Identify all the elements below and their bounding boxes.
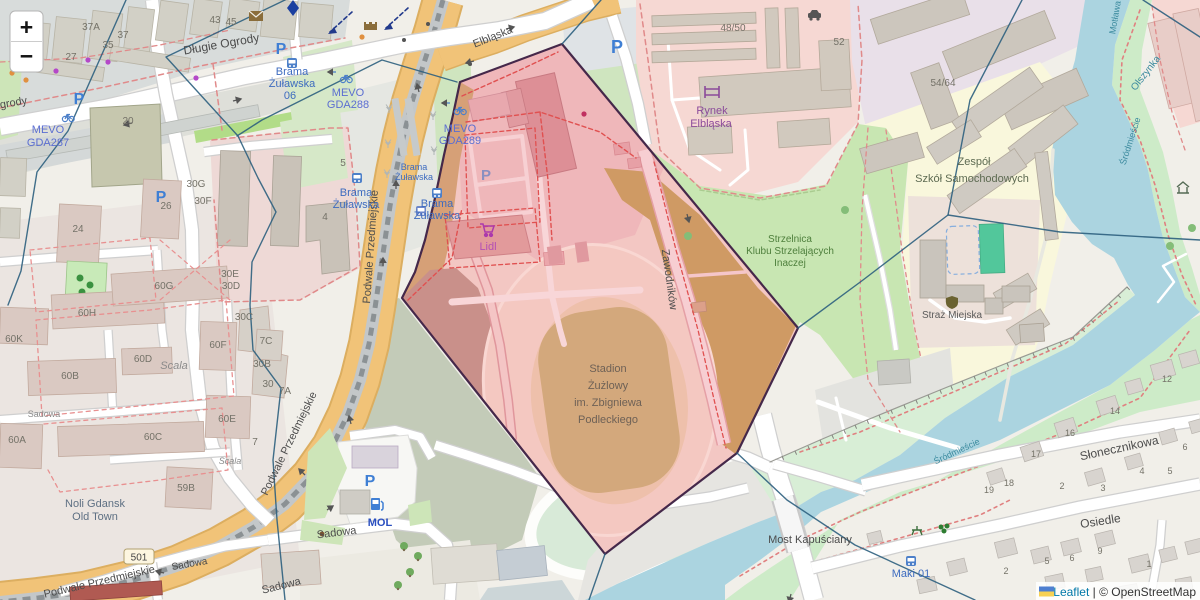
svg-text:26: 26 [160, 201, 172, 212]
svg-text:3: 3 [1100, 483, 1105, 493]
svg-text:Stadion: Stadion [589, 363, 626, 375]
svg-text:5: 5 [1044, 556, 1049, 566]
svg-text:6: 6 [1069, 553, 1074, 563]
svg-text:Klubu Strzelających: Klubu Strzelających [746, 246, 834, 257]
svg-text:4: 4 [322, 212, 328, 223]
svg-text:Old Town: Old Town [72, 511, 118, 523]
svg-text:52: 52 [833, 37, 845, 48]
svg-text:45: 45 [225, 17, 237, 28]
svg-text:30E: 30E [221, 269, 239, 280]
svg-text:60C: 60C [144, 432, 162, 443]
svg-text:59B: 59B [177, 483, 195, 494]
svg-text:30F: 30F [194, 196, 211, 207]
svg-text:+: + [20, 14, 33, 40]
svg-text:Lidl: Lidl [479, 241, 496, 253]
svg-text:Żużlowy: Żużlowy [588, 379, 629, 392]
svg-text:30D: 30D [222, 281, 240, 292]
svg-text:60A: 60A [8, 435, 26, 446]
svg-text:GDA287: GDA287 [27, 137, 69, 149]
svg-text:7C: 7C [260, 336, 273, 347]
svg-text:Podleckiego: Podleckiego [578, 414, 638, 426]
svg-text:37A: 37A [82, 22, 100, 33]
svg-text:54/64: 54/64 [930, 78, 955, 89]
svg-text:P: P [276, 41, 287, 58]
svg-text:30C: 30C [235, 312, 253, 323]
svg-text:1: 1 [1146, 559, 1151, 569]
svg-text:12: 12 [1162, 374, 1172, 384]
svg-text:MEVO: MEVO [332, 87, 365, 99]
svg-text:MEVO: MEVO [444, 123, 477, 135]
svg-text:60G: 60G [155, 281, 174, 292]
svg-text:P: P [611, 37, 623, 57]
svg-text:Brama: Brama [421, 198, 454, 210]
svg-text:P: P [365, 473, 376, 490]
svg-text:Sadowa: Sadowa [28, 409, 61, 419]
svg-text:60H: 60H [78, 308, 96, 319]
svg-text:MEVO: MEVO [32, 124, 65, 136]
svg-text:60B: 60B [61, 371, 79, 382]
svg-text:Strzelnica: Strzelnica [768, 234, 812, 245]
svg-text:Rynek: Rynek [696, 105, 728, 117]
svg-text:Scala: Scala [219, 456, 242, 466]
svg-text:37: 37 [117, 30, 129, 41]
svg-text:20: 20 [122, 116, 134, 127]
svg-text:48/50: 48/50 [720, 23, 745, 34]
svg-text:P: P [74, 91, 85, 108]
svg-text:GDA288: GDA288 [327, 99, 369, 111]
svg-text:Żuławska: Żuławska [414, 209, 461, 222]
svg-text:Straż Miejska: Straż Miejska [922, 310, 982, 321]
svg-text:06: 06 [284, 90, 296, 102]
svg-text:Brama: Brama [401, 162, 428, 172]
svg-text:−: − [20, 43, 33, 69]
svg-text:24: 24 [72, 224, 84, 235]
svg-text:5: 5 [340, 158, 346, 169]
svg-text:P: P [481, 167, 491, 184]
svg-text:Żuławska: Żuławska [269, 77, 316, 90]
svg-text:Elbląska: Elbląska [690, 118, 732, 130]
svg-text:Brama: Brama [276, 66, 309, 78]
svg-text:6: 6 [1182, 442, 1187, 452]
svg-text:Scala: Scala [160, 360, 188, 372]
svg-text:30B: 30B [253, 359, 271, 370]
svg-text:17: 17 [1031, 449, 1041, 459]
svg-text:60K: 60K [5, 334, 23, 345]
svg-text:5: 5 [1167, 466, 1172, 476]
svg-text:Żuławska: Żuławska [333, 198, 380, 211]
svg-text:MOL: MOL [368, 517, 393, 529]
svg-text:30G: 30G [187, 179, 206, 190]
svg-text:2: 2 [1059, 481, 1064, 491]
svg-text:18: 18 [1004, 478, 1014, 488]
svg-text:43: 43 [209, 15, 221, 26]
svg-text:19: 19 [984, 485, 994, 495]
svg-text:Szkół Samochodowych: Szkół Samochodowych [915, 173, 1029, 185]
svg-text:Inaczej: Inaczej [774, 258, 806, 269]
svg-text:Brama: Brama [340, 187, 373, 199]
svg-text:35: 35 [102, 40, 114, 51]
svg-text:Leaflet | © OpenStreetMap: Leaflet | © OpenStreetMap [1053, 585, 1196, 599]
svg-text:Noli Gdansk: Noli Gdansk [65, 498, 125, 510]
svg-text:27: 27 [65, 52, 77, 63]
svg-text:60F: 60F [209, 340, 226, 351]
svg-text:60E: 60E [218, 414, 236, 425]
svg-text:7A: 7A [279, 386, 292, 397]
svg-text:501: 501 [131, 553, 148, 564]
svg-text:im. Zbigniewa: im. Zbigniewa [574, 397, 643, 409]
svg-text:60D: 60D [134, 354, 152, 365]
svg-text:14: 14 [1110, 406, 1120, 416]
svg-text:16: 16 [1065, 428, 1075, 438]
svg-text:GDA289: GDA289 [439, 135, 481, 147]
svg-text:Maki 01: Maki 01 [892, 568, 931, 580]
svg-text:2: 2 [1003, 566, 1008, 576]
svg-text:Zespół: Zespół [957, 156, 991, 168]
svg-text:Most Kapuściany: Most Kapuściany [768, 534, 852, 546]
svg-text:9: 9 [1097, 546, 1102, 556]
svg-text:Żuławska: Żuławska [395, 172, 433, 182]
svg-text:4: 4 [1139, 466, 1144, 476]
svg-text:30: 30 [262, 379, 274, 390]
svg-text:7: 7 [252, 437, 258, 448]
